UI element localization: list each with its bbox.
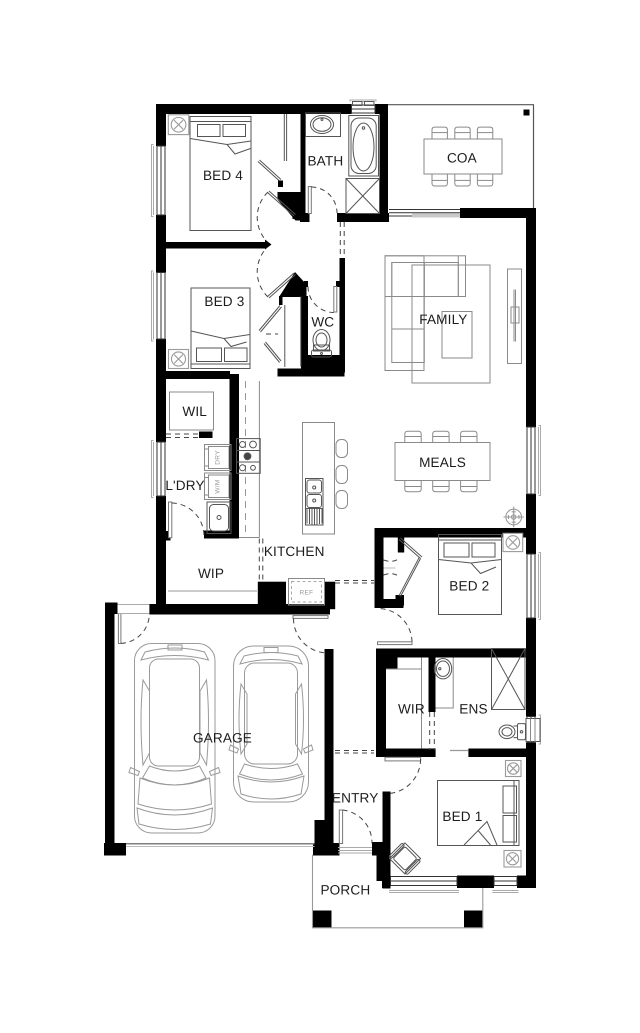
svg-text:BATH: BATH [307, 154, 343, 169]
svg-text:BED 3: BED 3 [204, 294, 244, 309]
svg-text:REF: REF [300, 590, 314, 597]
svg-text:WIP: WIP [198, 566, 224, 581]
svg-text:FAMILY: FAMILY [419, 312, 467, 327]
svg-text:ENTRY: ENTRY [332, 791, 379, 806]
svg-text:MEALS: MEALS [419, 455, 466, 470]
svg-text:PORCH: PORCH [320, 883, 370, 898]
svg-text:WIL: WIL [182, 404, 207, 419]
svg-text:W/M: W/M [215, 479, 222, 493]
svg-text:COA: COA [447, 151, 478, 166]
svg-text:DRY: DRY [215, 450, 222, 465]
svg-text:ENS: ENS [459, 702, 487, 717]
svg-text:L'DRY: L'DRY [165, 478, 204, 493]
svg-text:WIR: WIR [398, 702, 425, 717]
svg-text:WC: WC [311, 315, 334, 330]
svg-text:BED 4: BED 4 [203, 168, 243, 183]
svg-text:GARAGE: GARAGE [193, 731, 252, 746]
svg-text:BED 1: BED 1 [442, 809, 482, 824]
svg-text:BED 2: BED 2 [449, 579, 489, 594]
svg-text:KITCHEN: KITCHEN [264, 544, 325, 559]
